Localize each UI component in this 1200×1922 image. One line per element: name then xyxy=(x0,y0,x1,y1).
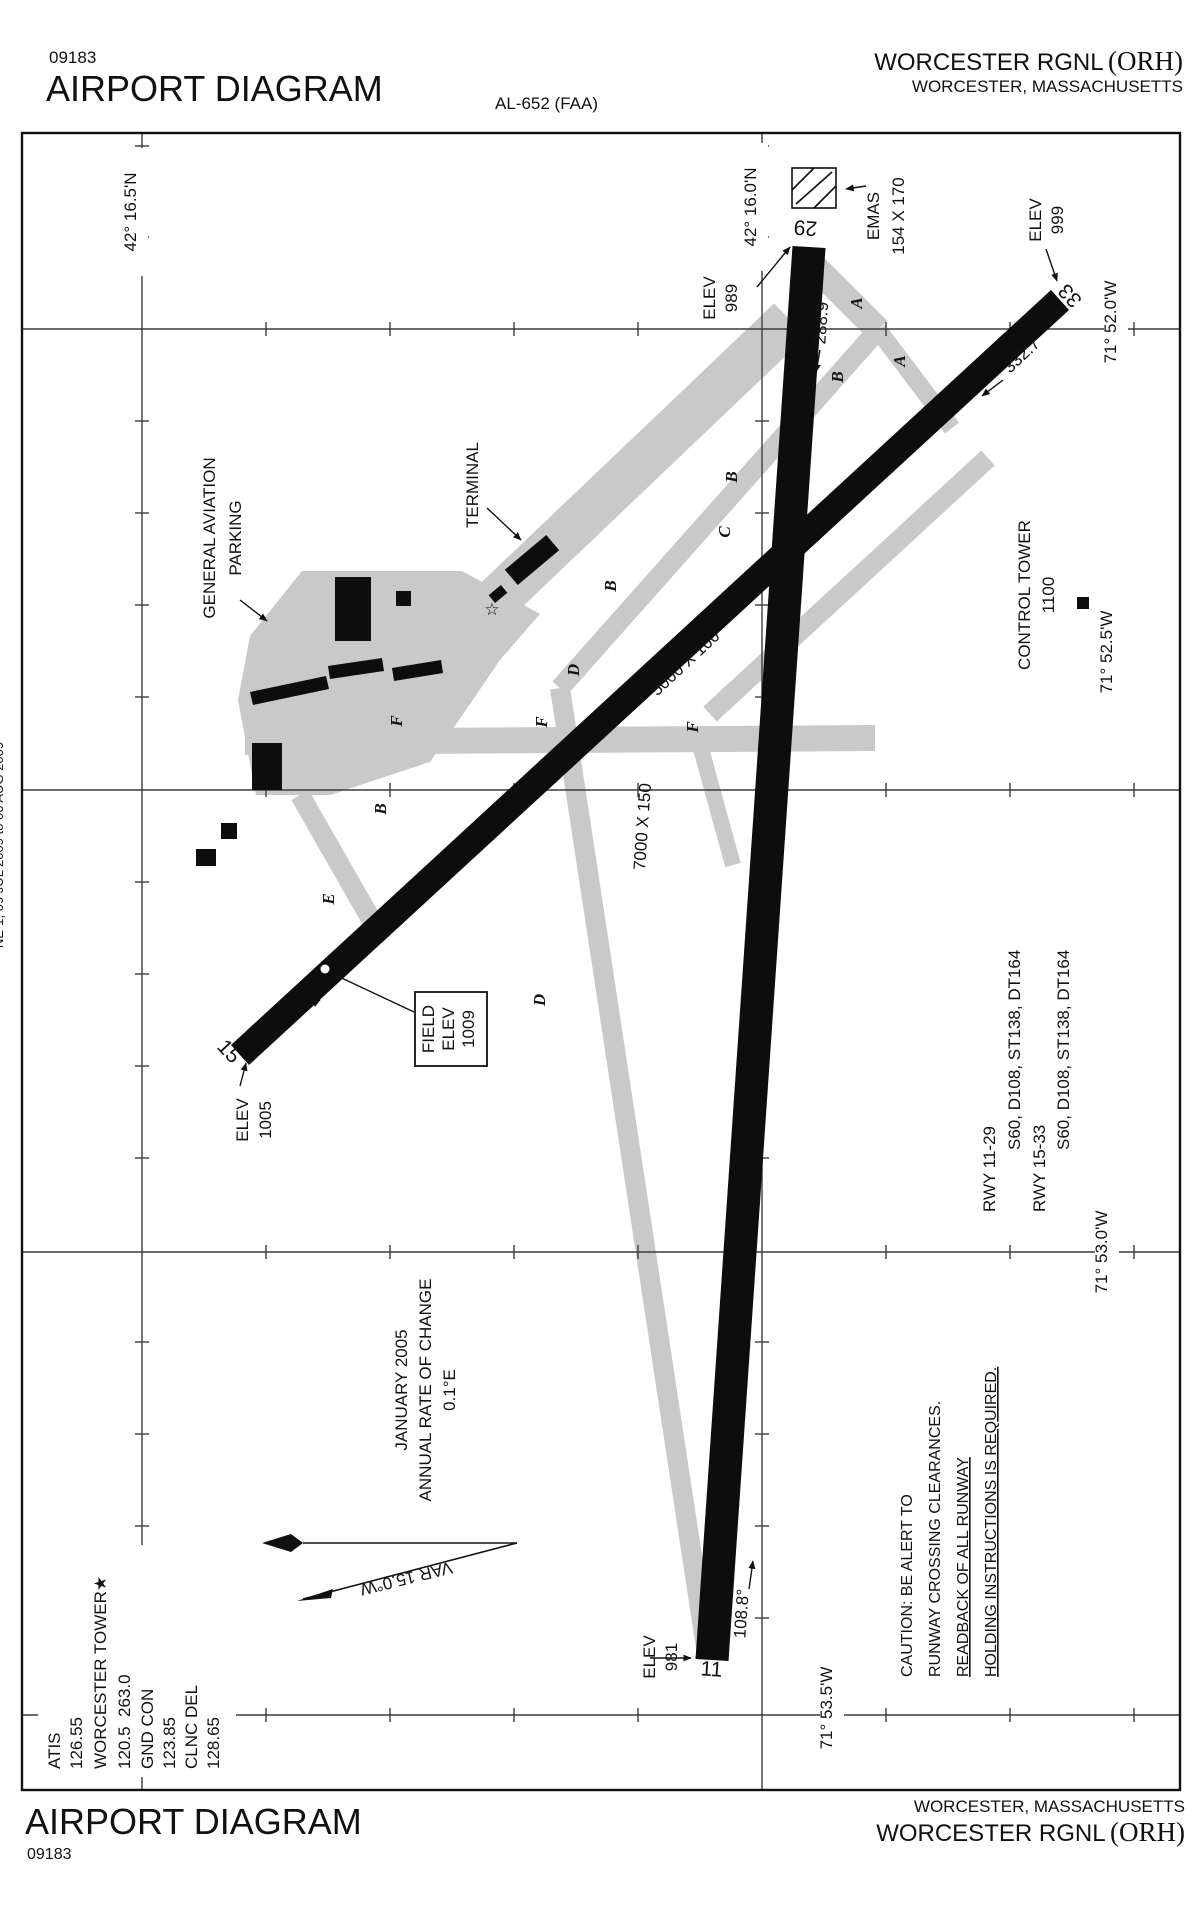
header-title: AIRPORT DIAGRAM xyxy=(46,68,383,110)
airport-name-text: WORCESTER RGNL xyxy=(874,49,1103,76)
lon-label-52-0: 71° 52.0'W xyxy=(1101,281,1120,364)
rwy-data-line-4: S60, D108, ST138, DT164 xyxy=(1054,950,1073,1150)
field-elev-l3: 1009 xyxy=(459,1010,478,1048)
elev-999-label: ELEV xyxy=(1026,198,1045,242)
taxiway-label-b: B xyxy=(828,371,847,383)
emas-label: EMAS xyxy=(864,192,883,240)
field-elev-l2: ELEV xyxy=(439,1007,458,1051)
freq-gnd-label: GND CON xyxy=(138,1689,157,1769)
elev-999-value: 999 xyxy=(1048,206,1067,234)
footer-title: AIRPORT DIAGRAM xyxy=(25,1801,362,1843)
freq-tower-value: 120.5 263.0 xyxy=(115,1674,134,1769)
hdg-288-9: 288.9° xyxy=(810,294,832,345)
terminal-leader xyxy=(487,508,521,540)
taxiway-label-b: B xyxy=(371,803,390,815)
elev-1005-value: 1005 xyxy=(256,1101,275,1139)
elev-981-label: ELEV xyxy=(640,1635,659,1679)
taxiway-stub xyxy=(700,745,733,865)
variation-rate: ANNUAL RATE OF CHANGE xyxy=(416,1279,435,1502)
freq-gnd-value: 123.85 xyxy=(160,1717,179,1769)
header-al-number: AL-652 (FAA) xyxy=(495,94,598,114)
taxiway-label-b: B xyxy=(722,471,741,483)
airport-icao-code: (ORH) xyxy=(1108,46,1183,76)
variation-value: 0.1°E xyxy=(440,1369,459,1411)
field-elev-leader xyxy=(331,973,414,1012)
faa-airport-diagram-page: { "header": { "code": "09183", "title": … xyxy=(0,0,1200,1922)
taxiway-label-a: A xyxy=(847,297,866,309)
elev-989-value: 989 xyxy=(722,284,741,312)
field-elev-dot xyxy=(321,965,330,974)
taxiway-label-d: D xyxy=(564,664,583,677)
elev-989-label: ELEV xyxy=(700,276,719,320)
lat-label-16-5: 42° 16.5'N xyxy=(121,172,140,251)
hangar-southwest xyxy=(252,743,282,790)
lon-label-53-0: 71° 53.0'W xyxy=(1092,1211,1111,1294)
emas-pad xyxy=(792,168,836,208)
elev-999-leader xyxy=(1046,249,1057,281)
control-tower-label: CONTROL TOWER xyxy=(1015,520,1034,670)
taxiway-label-e: E xyxy=(319,893,338,905)
caution-line-3: READBACK OF ALL RUNWAY xyxy=(955,1457,972,1677)
lon-label-53-5: 71° 53.5'W xyxy=(817,1667,836,1750)
header-city: WORCESTER, MASSACHUSETTS xyxy=(683,77,1183,97)
ga-parking-label-2: PARKING xyxy=(226,500,245,575)
taxiway-label-f: F xyxy=(683,721,702,734)
freq-atis-value: 126.55 xyxy=(67,1717,86,1769)
runway-number-11: 11 xyxy=(700,1657,723,1681)
ga-parking-leader xyxy=(240,600,267,621)
lon-label-52-5: 71° 52.5'W xyxy=(1097,611,1116,694)
footer-city: WORCESTER, MASSACHUSETTS xyxy=(665,1797,1185,1817)
runway-number-29: 29 xyxy=(793,215,818,240)
elev-1005-leader xyxy=(240,1063,246,1086)
taxiway-label-b: B xyxy=(601,580,620,592)
control-tower-elev: 1100 xyxy=(1039,577,1058,614)
variation-arrow-label: VAR 15.0°W xyxy=(358,1558,454,1599)
airport-diagram-chart: ☆ 42° 16.5'N 42° 16.0'N 71° 52.0'W xyxy=(0,0,1200,1922)
freq-atis-label: ATIS xyxy=(45,1732,64,1769)
field-elev-l1: FIELD xyxy=(419,1005,438,1053)
ga-parking-label-1: GENERAL AVIATION xyxy=(200,457,219,618)
small-hangar-1 xyxy=(196,849,216,866)
elev-981-value: 981 xyxy=(662,1643,681,1671)
header-airport-block: WORCESTER RGNL (ORH) WORCESTER, MASSACHU… xyxy=(683,46,1183,97)
terminal-label: TERMINAL xyxy=(463,442,482,528)
footer-airport-name: WORCESTER RGNL (ORH) xyxy=(665,1817,1185,1848)
small-building xyxy=(396,591,411,606)
lat-label-16-0: 42° 16.0'N xyxy=(741,167,760,246)
taxiway-label-d: D xyxy=(530,994,549,1007)
footer-chart-code: 09183 xyxy=(27,1846,72,1864)
page-margin-cycle-text: NE-1, 09 JUL 2009 to 06 AUG 2009 xyxy=(0,742,6,948)
hdg-108-8: 108.8° xyxy=(730,1588,752,1639)
freq-tower-label: WORCESTER TOWER★ xyxy=(91,1576,110,1769)
emas-leader xyxy=(846,186,866,189)
emas-dim: 154 X 170 xyxy=(889,177,908,255)
taxiway-label-f: F xyxy=(387,715,406,728)
taxiway-label-f: F xyxy=(532,716,551,729)
rwy-data-line-2: S60, D108, ST138, DT164 xyxy=(1005,950,1024,1150)
rwy-data-line-3: RWY 15-33 xyxy=(1030,1125,1049,1212)
freq-clnc-label: CLNC DEL xyxy=(182,1685,201,1769)
hdg-108-arrow xyxy=(749,1561,753,1589)
header-airport-name: WORCESTER RGNL (ORH) xyxy=(683,46,1183,77)
variation-date: JANUARY 2005 xyxy=(392,1329,411,1450)
caution-line-1: CAUTION: BE ALERT TO xyxy=(899,1494,916,1677)
taxiway-label-c: C xyxy=(715,526,734,538)
caution-line-4: HOLDING INSTRUCTIONS IS REQUIRED. xyxy=(983,1367,1000,1677)
small-hangar-2 xyxy=(221,823,237,839)
control-tower-square xyxy=(1077,597,1089,609)
airport-name-text: WORCESTER RGNL xyxy=(876,1820,1105,1847)
runway-11-29-dim: 7000 X 150 xyxy=(630,783,655,871)
airport-icao-code: (ORH) xyxy=(1110,1817,1185,1847)
elev-1005-label: ELEV xyxy=(233,1098,252,1142)
footer-airport-block: WORCESTER, MASSACHUSETTS WORCESTER RGNL … xyxy=(665,1797,1185,1848)
taxiway-label-a: A xyxy=(890,355,909,367)
ga-building xyxy=(335,577,371,641)
freq-clnc-value: 128.65 xyxy=(204,1717,223,1769)
beacon-star-icon: ☆ xyxy=(484,600,499,619)
caution-line-2: RUNWAY CROSSING CLEARANCES. xyxy=(927,1401,944,1677)
rwy-data-line-1: RWY 11-29 xyxy=(980,1126,999,1212)
taxiway-e-band xyxy=(300,795,380,935)
header-chart-code: 09183 xyxy=(49,48,96,68)
